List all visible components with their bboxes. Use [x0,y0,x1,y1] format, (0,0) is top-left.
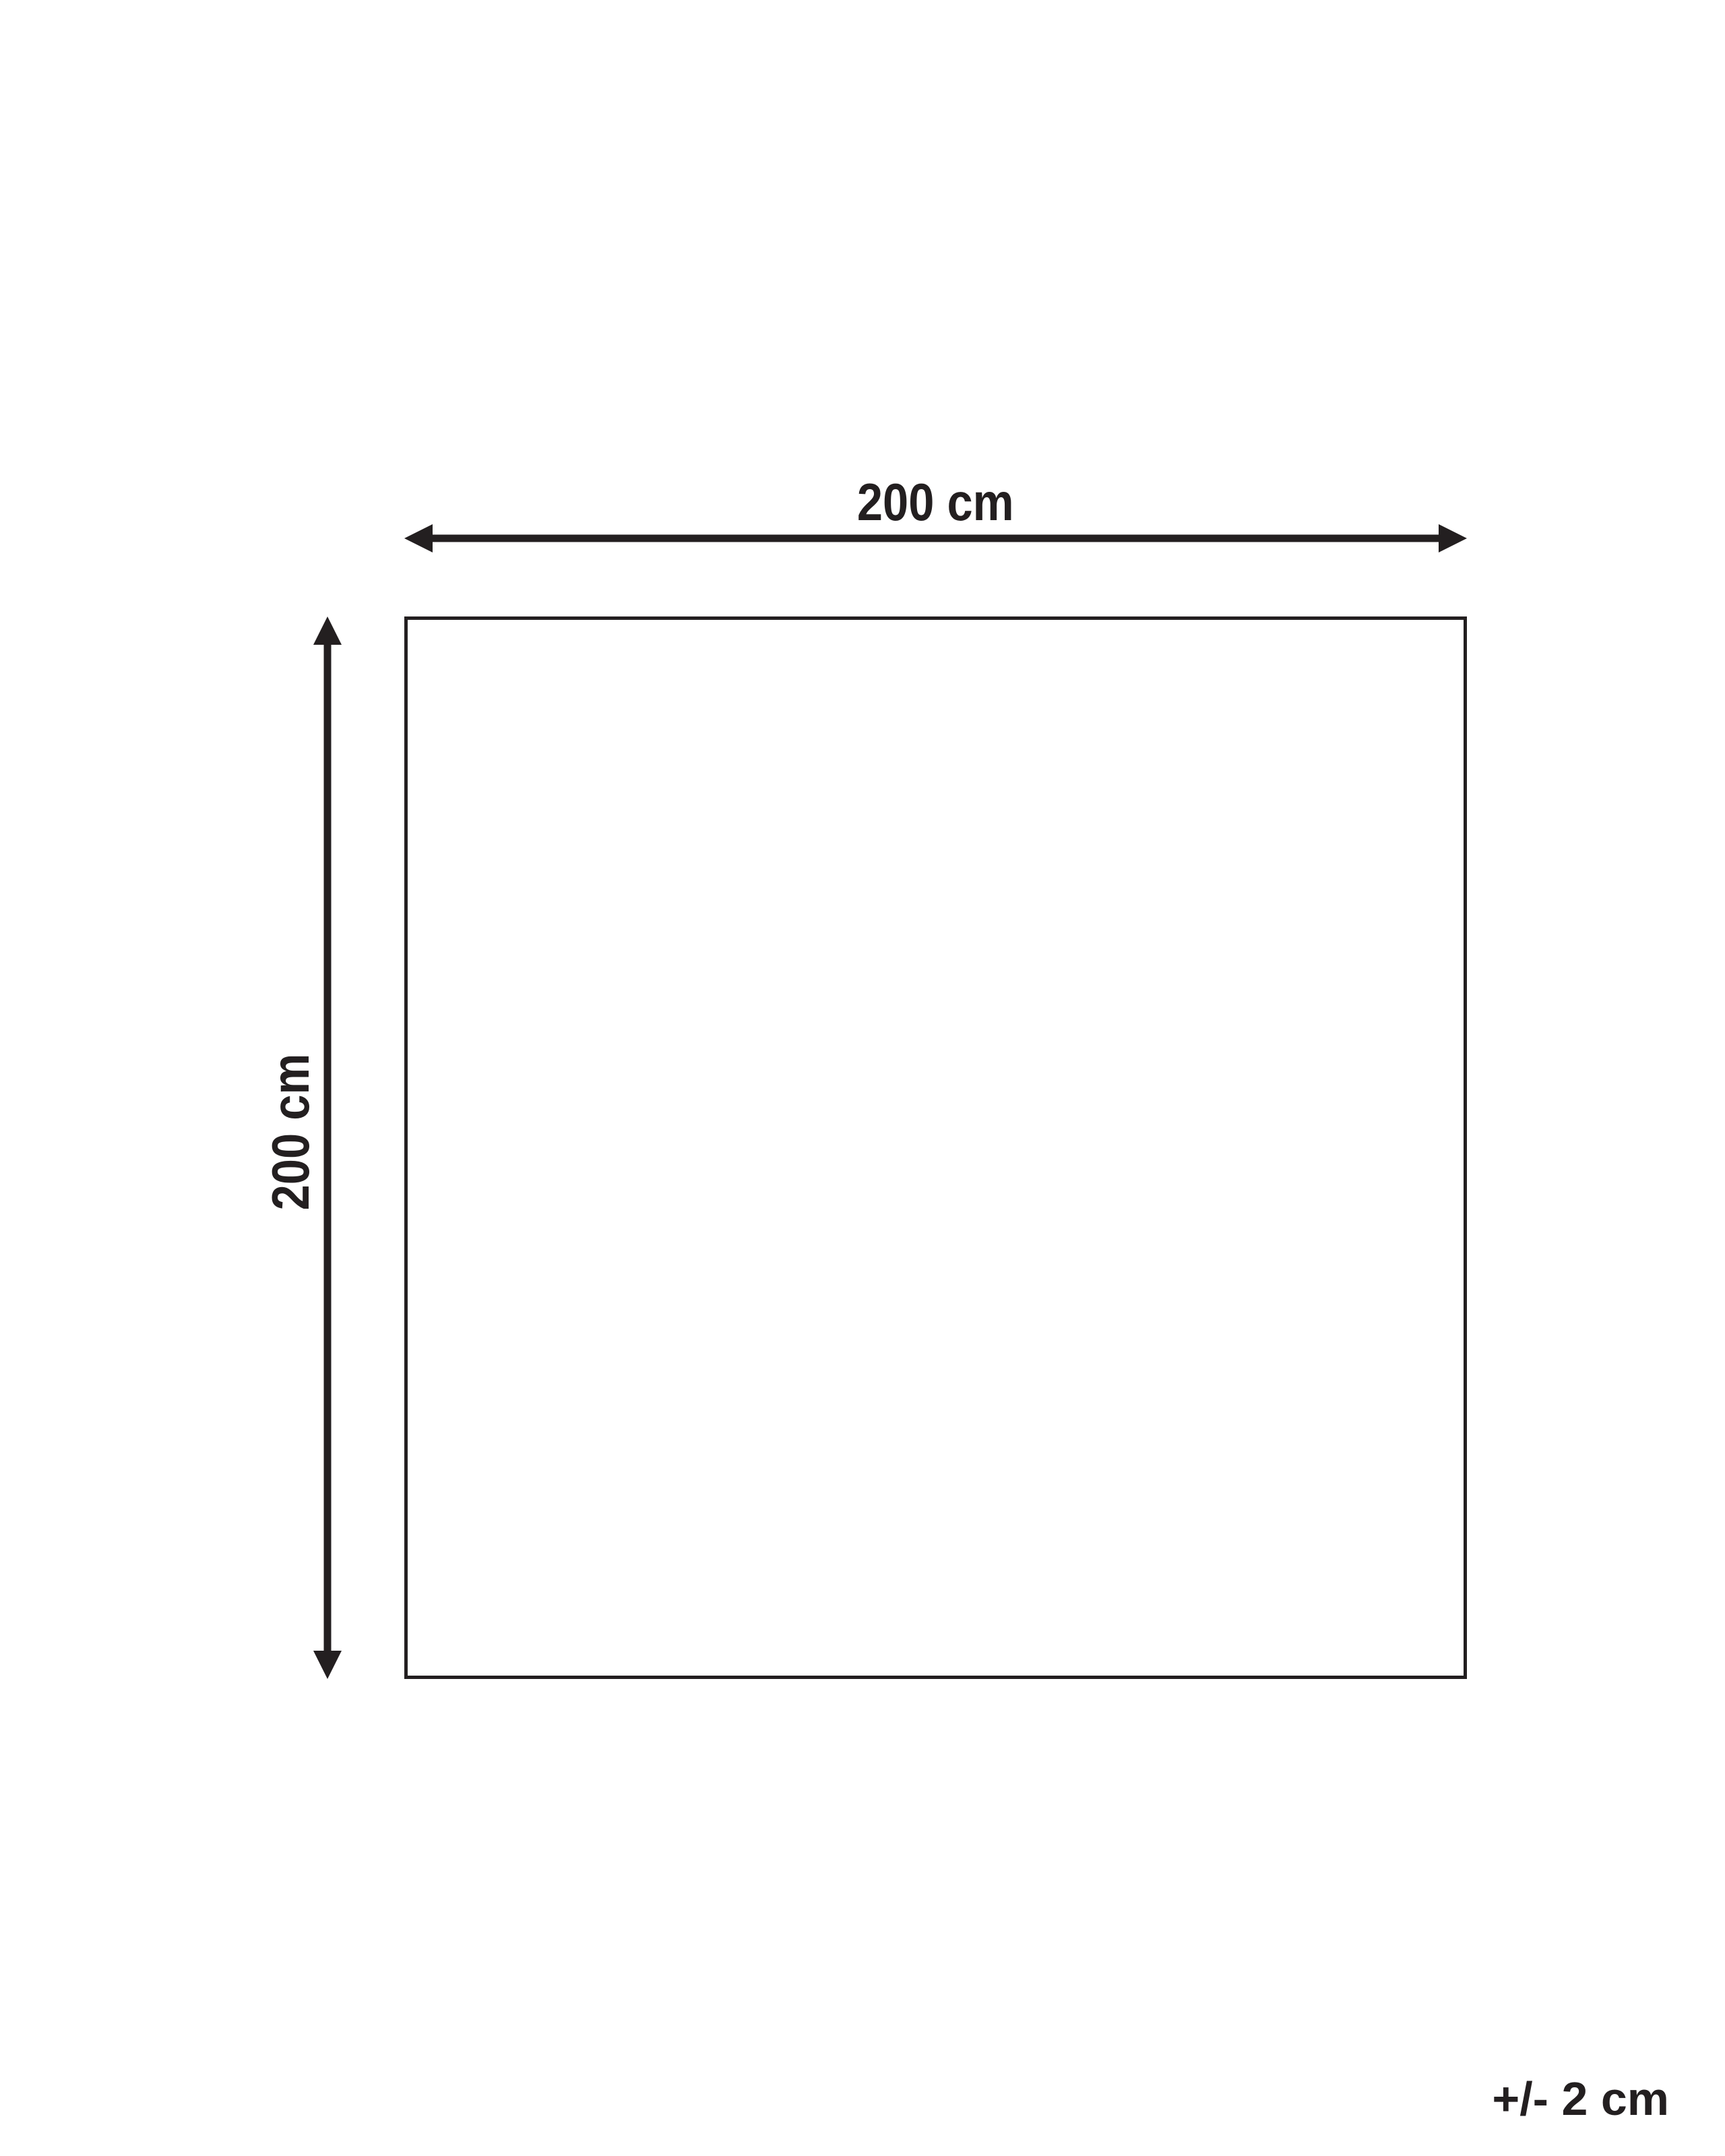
arrow-right-head-icon [1439,524,1467,552]
width-dimension-arrow [404,524,1467,553]
height-dimension-text: 200 cm [261,1054,320,1211]
dimension-diagram: 200 cm 200 cm +/- 2 cm [0,0,1725,2156]
product-outline [404,616,1467,1679]
width-arrow-graphic [404,524,1467,553]
width-dimension-text: 200 cm [857,476,1014,528]
arrow-down-head-icon [313,1651,342,1679]
width-dimension-label: 200 cm [404,476,1467,528]
height-arrow-graphic [313,616,342,1679]
height-dimension-arrow [313,616,342,1679]
tolerance-label: +/- 2 cm [1492,2075,1669,2122]
tolerance-text: +/- 2 cm [1492,2072,1669,2125]
arrow-up-head-icon [313,616,342,645]
arrow-left-head-icon [404,524,433,552]
height-dimension-label: 200 cm [264,1054,317,1211]
